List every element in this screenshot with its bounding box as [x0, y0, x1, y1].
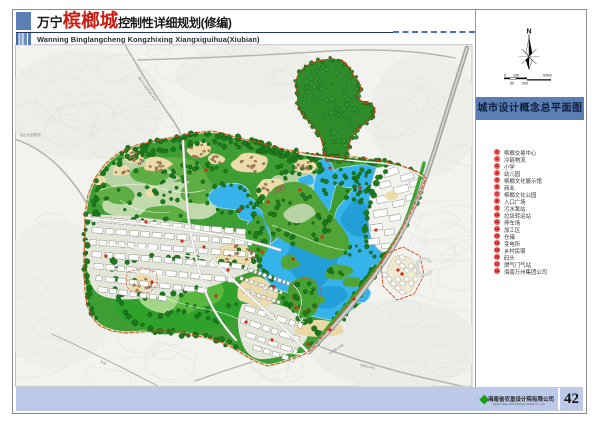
svg-text:0: 0 [504, 74, 506, 78]
svg-text:100: 100 [513, 74, 519, 78]
svg-text:N: N [526, 29, 531, 36]
svg-text:200: 200 [522, 82, 528, 86]
svg-text:50: 50 [510, 82, 514, 86]
svg-text:金山大道(规划): 金山大道(规划) [20, 132, 41, 137]
svg-text:500m: 500m [543, 74, 552, 78]
svg-text:C: C [414, 252, 434, 282]
